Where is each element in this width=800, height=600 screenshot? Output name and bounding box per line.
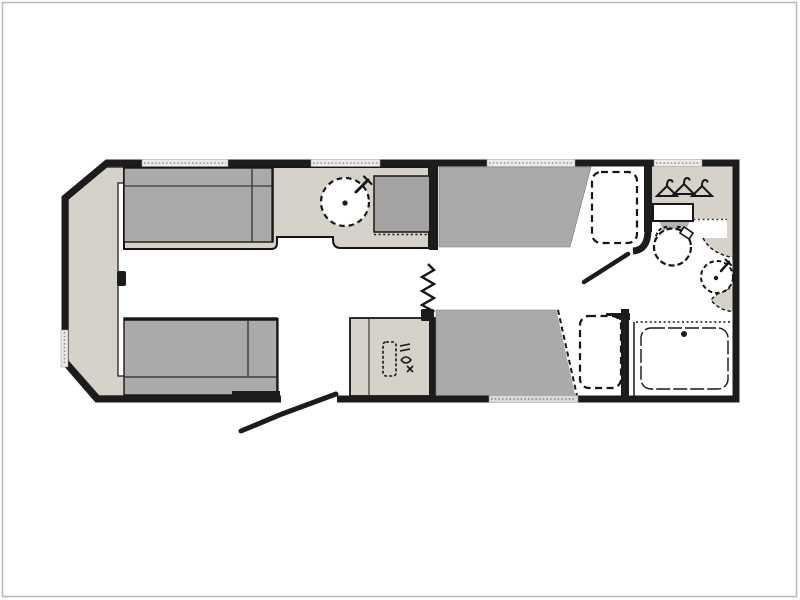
sink-drain-icon xyxy=(342,200,347,205)
heater-cabinet-end-wall xyxy=(429,318,435,396)
shower-drain-icon xyxy=(681,331,687,337)
floorplan-canvas xyxy=(0,0,800,600)
basin-drain-icon xyxy=(714,276,718,280)
caravan-floorplan xyxy=(61,160,736,432)
kitchen-window xyxy=(311,160,380,167)
nearside-bed xyxy=(436,310,577,396)
table-mount xyxy=(117,271,126,286)
offside-bed xyxy=(439,167,591,247)
floorplan-image xyxy=(0,0,800,600)
hob xyxy=(374,176,431,235)
shower xyxy=(634,322,733,396)
toilet xyxy=(653,204,693,266)
offside-sofa xyxy=(124,168,273,242)
nearside-bed-window xyxy=(489,396,578,403)
front-window xyxy=(61,330,68,367)
wardrobe-window xyxy=(654,160,702,167)
washroom-wall-bottom xyxy=(621,309,629,399)
cistern-icon xyxy=(653,204,693,221)
lounge-window xyxy=(142,160,228,167)
overhead-bunk-bottom xyxy=(580,316,621,388)
washroom-wall-top xyxy=(644,164,652,232)
shower-tray-icon xyxy=(641,328,728,389)
nearside-sofa xyxy=(124,318,278,395)
wash-basin xyxy=(701,260,733,294)
concertina-door-post xyxy=(421,309,434,321)
heater-cabinet xyxy=(350,318,435,396)
wheel-arch xyxy=(232,391,280,400)
overhead-bunk-top xyxy=(592,172,637,243)
offside-bed-window xyxy=(487,160,575,167)
kitchen-divider-wall xyxy=(429,164,438,250)
